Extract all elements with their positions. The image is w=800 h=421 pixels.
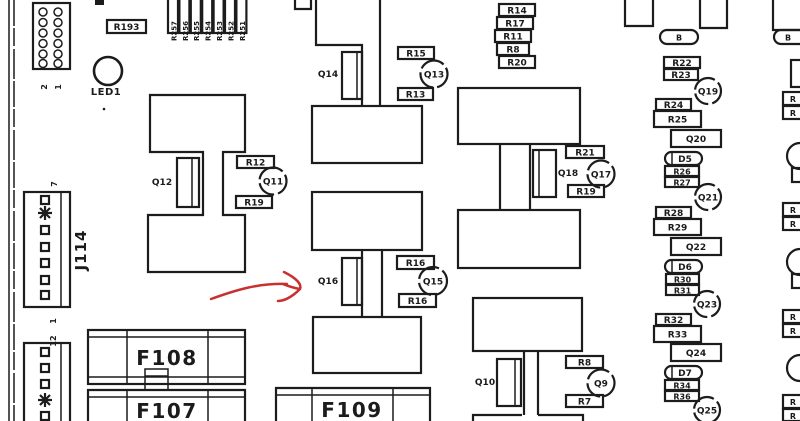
label-r13: R13 — [406, 91, 425, 101]
transistor-outline — [342, 258, 362, 305]
cut-transistor-circle — [787, 249, 800, 275]
pin-square — [41, 291, 49, 299]
cut-component-box — [773, 0, 800, 30]
label-d5: D5 — [678, 155, 692, 165]
resistor-stack: R14 R17 R11 R8 R20 — [495, 4, 535, 69]
label-r19b: R19 — [576, 188, 595, 198]
label-r25: R25 — [668, 116, 687, 126]
label-q22: Q22 — [686, 243, 706, 253]
label-r17: R17 — [505, 20, 524, 30]
label-r252: R252 — [227, 21, 235, 41]
label-q24: Q24 — [686, 349, 706, 359]
label-q20: Q20 — [686, 135, 706, 145]
pin-hole — [54, 19, 62, 27]
transistor-block-q18: Q18 R21 Q17 R19 — [458, 88, 615, 268]
label-r28: R28 — [664, 209, 683, 219]
label-edge-r2: R — [790, 109, 796, 118]
board-edge — [9, 0, 14, 421]
pin-hole — [54, 60, 62, 68]
label-q16: Q16 — [318, 277, 338, 287]
label-j114: J114 — [72, 230, 90, 272]
pad-shape — [312, 192, 422, 250]
pin-square — [41, 196, 49, 204]
pad-neck — [500, 144, 530, 210]
top-right-cut-components: B B — [625, 0, 800, 44]
cut-component-box — [700, 0, 727, 28]
pin-square — [41, 259, 49, 267]
label-r24: R24 — [664, 101, 683, 111]
pin-square — [41, 243, 49, 251]
label-edge-r3: R — [790, 206, 796, 215]
cut-component-box — [625, 0, 653, 26]
label-led1: LED1 — [91, 87, 121, 98]
pin-hole — [54, 29, 62, 37]
led1: LED1 — [91, 57, 122, 98]
label-r21: R21 — [575, 149, 594, 159]
pin-hole — [39, 29, 47, 37]
label-r20: R20 — [507, 59, 526, 69]
label-q11: Q11 — [263, 178, 283, 188]
cut-pad-fragment — [145, 369, 168, 389]
right-edge-cut-components: R R R R R R R R — [783, 60, 800, 421]
label-j114-pin1: 1 — [49, 318, 58, 324]
transistor-outline — [177, 158, 199, 207]
fuse-f107: F107 — [88, 390, 245, 421]
label-q15: Q15 — [423, 278, 443, 288]
label-r29: R29 — [668, 224, 687, 234]
arrow-head-inner — [283, 284, 300, 289]
label-q25: Q25 — [697, 407, 717, 417]
pin-hole — [39, 8, 47, 16]
label-r34: R34 — [673, 382, 691, 391]
cut-transistor-circle — [787, 355, 800, 381]
label-q14: Q14 — [318, 70, 338, 80]
arrow-shaft — [211, 284, 287, 299]
label-pill-b2: B — [785, 34, 791, 43]
label-r257: R257 — [170, 21, 178, 41]
label-q19: Q19 — [698, 88, 718, 98]
label-r26: R26 — [673, 168, 691, 177]
label-r36: R36 — [673, 393, 691, 402]
label-r27: R27 — [673, 179, 690, 188]
label-f107: F107 — [136, 399, 197, 421]
label-f109: F109 — [321, 398, 382, 421]
pcb-layout-scan: 2 1 R193 LED1 R257 R256 R255 R254 R253 R… — [0, 0, 800, 421]
pin-square — [41, 412, 49, 420]
right-component-column: R22 R23 Q19 R24 R25 Q20 D5 R26 R27 Q21 R… — [654, 57, 721, 421]
pad-shape — [473, 298, 582, 351]
label-q18: Q18 — [558, 169, 578, 179]
pin-key-star — [38, 206, 52, 220]
label-j114-pin7: 7 — [50, 181, 59, 187]
cut-component-box — [295, 0, 311, 9]
pin-square — [41, 276, 49, 284]
pad-shape — [458, 210, 580, 268]
pad-shape — [313, 317, 421, 373]
pin-hole — [39, 50, 47, 58]
cut-component-box — [791, 60, 800, 87]
label-r193: R193 — [114, 23, 140, 33]
pin-square — [41, 348, 49, 356]
label-q17: Q17 — [591, 171, 611, 181]
pin-hole — [54, 8, 62, 16]
cut-component-box — [792, 274, 800, 288]
pad-neck — [524, 351, 538, 415]
label-edge-r8: R — [790, 412, 796, 421]
label-q21: Q21 — [698, 194, 718, 204]
label-r15: R15 — [406, 50, 425, 60]
label-r19: R19 — [244, 199, 263, 209]
pin-hole — [54, 50, 62, 58]
connector-outline — [24, 192, 70, 307]
pad-neck — [362, 250, 382, 317]
connector-bottom-left: 12 — [24, 335, 70, 421]
label-r14: R14 — [507, 7, 526, 17]
transistor-outline — [497, 359, 521, 406]
connector-outline — [24, 343, 70, 421]
label-q12: Q12 — [152, 178, 172, 188]
pin-square — [41, 380, 49, 388]
cut-component-box — [792, 168, 800, 182]
cut-transistor-circle — [787, 143, 800, 169]
transistor-block-q12: Q12 R12 Q11 R19 — [148, 95, 287, 272]
connector-j114: 7 1 J114 — [24, 181, 90, 324]
led-outline — [94, 57, 122, 85]
label-r256: R256 — [182, 21, 190, 41]
transistor-block-q16: Q16 R16 Q15 R16 — [312, 192, 447, 373]
label-f108: F108 — [136, 346, 197, 370]
label-r12: R12 — [246, 159, 265, 169]
label-pin12: 12 — [49, 335, 58, 346]
label-r31: R31 — [674, 287, 692, 296]
label-r253: R253 — [216, 21, 224, 41]
label-q9: Q9 — [594, 380, 608, 390]
transistor-block-q14: Q14 R15 Q13 R13 — [312, 0, 448, 163]
pin-hole — [39, 19, 47, 27]
transistor-outline — [533, 150, 556, 197]
pin-hole — [39, 60, 47, 68]
pad-shape — [458, 88, 580, 144]
label-edge-r1: R — [790, 95, 796, 104]
label-d6: D6 — [678, 263, 692, 273]
pad-shape-cut — [473, 415, 583, 421]
label-q23: Q23 — [697, 301, 717, 311]
pin-label-1: 1 — [54, 84, 63, 90]
transistor-block-q10: Q10 R8 Q9 R7 — [473, 298, 615, 421]
pin-key-star — [38, 393, 52, 407]
label-r30: R30 — [674, 276, 692, 285]
dot-artifact — [103, 108, 106, 111]
label-r11: R11 — [503, 33, 522, 43]
pin-label-2: 2 — [40, 84, 49, 90]
label-r22: R22 — [672, 59, 691, 69]
label-edge-r6: R — [790, 327, 796, 336]
label-q10: Q10 — [475, 378, 495, 388]
label-r254: R254 — [205, 21, 213, 41]
label-edge-r4: R — [790, 220, 796, 229]
label-r16-top: R16 — [406, 259, 425, 269]
cut-component-mark — [95, 0, 104, 5]
label-edge-r7: R — [790, 398, 796, 407]
label-r7: R7 — [578, 398, 591, 408]
label-r8b: R8 — [578, 359, 591, 369]
label-r32: R32 — [664, 316, 683, 326]
transistor-outline — [342, 52, 362, 99]
pin-hole — [54, 40, 62, 48]
label-q13: Q13 — [424, 71, 444, 81]
annotation-red-arrow — [211, 272, 300, 301]
label-r8: R8 — [506, 46, 519, 56]
label-d7: D7 — [678, 369, 692, 379]
resistor-bank-vertical: R257 R256 R255 R254 R253 R252 R251 — [168, 0, 247, 41]
label-r33: R33 — [668, 331, 687, 341]
pin-hole — [39, 40, 47, 48]
label-edge-r5: R — [790, 313, 796, 322]
pin-square — [41, 364, 49, 372]
pad-shape — [312, 106, 422, 163]
connector-header-top-left: 2 1 — [33, 3, 70, 90]
resistor-r193: R193 — [107, 20, 146, 33]
label-pill-b1: B — [676, 34, 682, 43]
label-r23: R23 — [671, 71, 690, 81]
label-r251: R251 — [239, 21, 247, 41]
label-r255: R255 — [193, 21, 201, 41]
label-r16-bottom: R16 — [408, 297, 427, 307]
pin-square — [41, 226, 49, 234]
fuse-f109: F109 — [276, 388, 430, 421]
